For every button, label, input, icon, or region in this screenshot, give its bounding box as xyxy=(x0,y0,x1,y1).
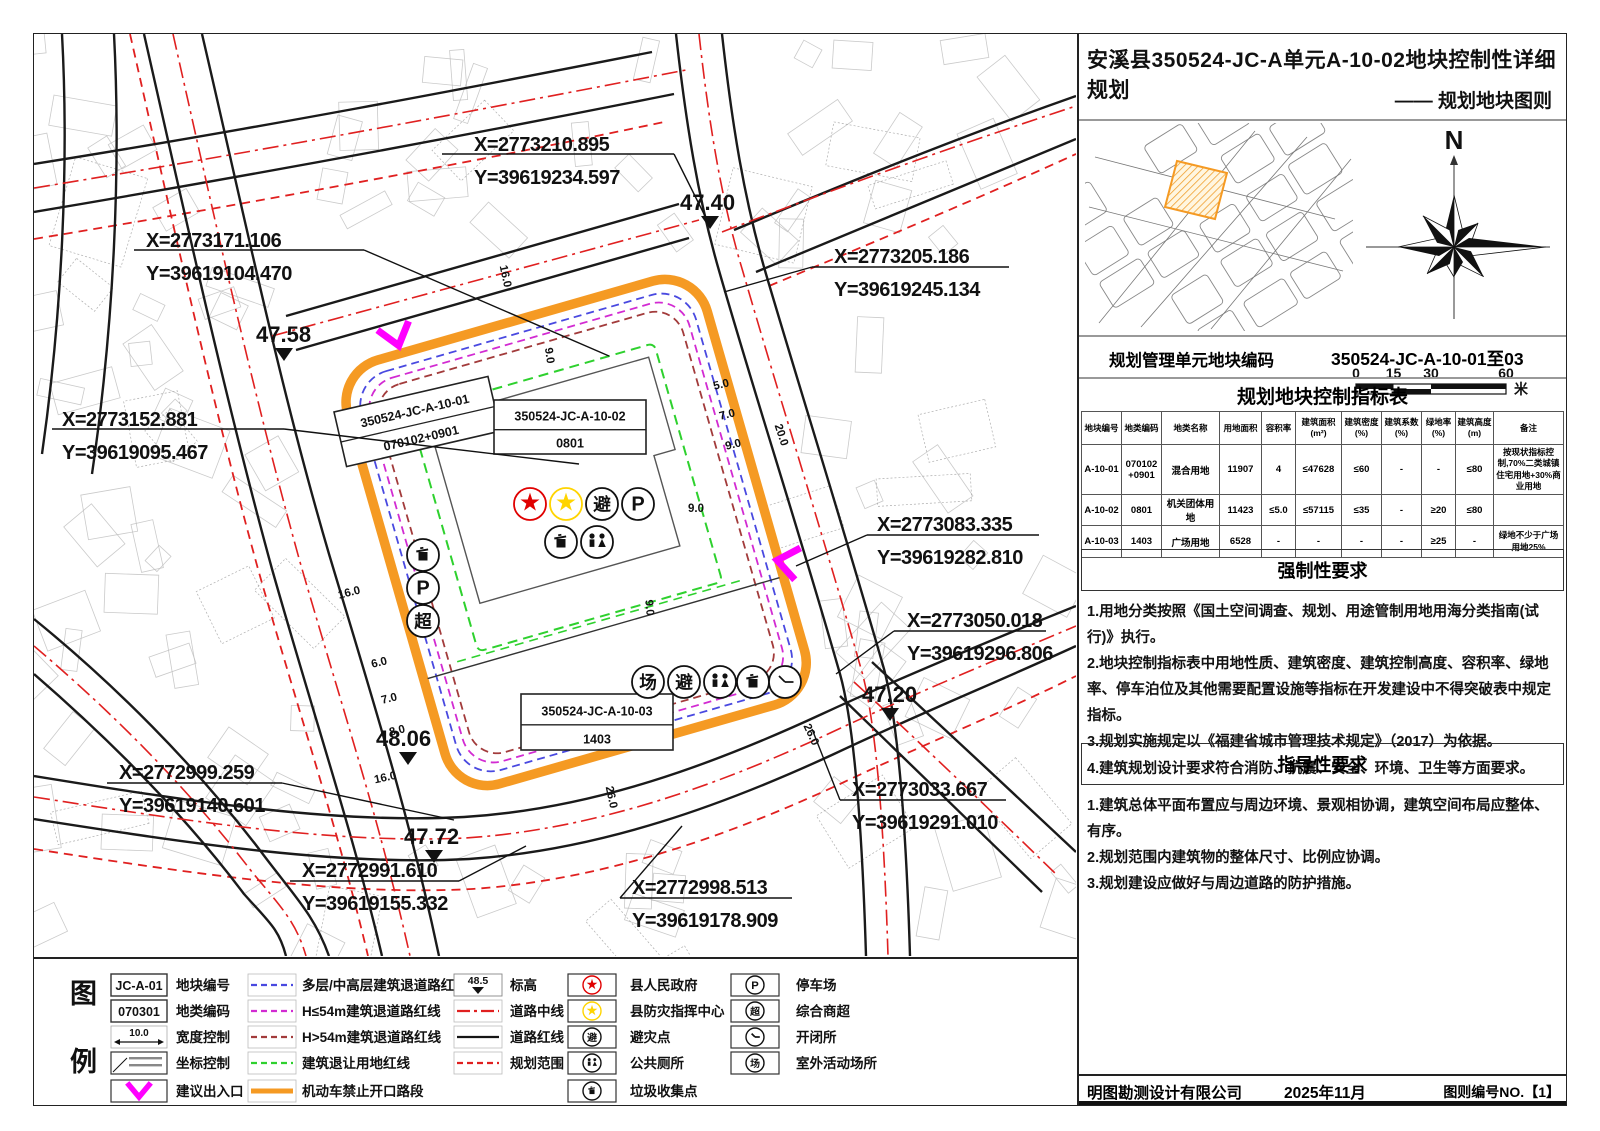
legend-label: 开闭所 xyxy=(796,1029,837,1045)
facility-char-icon: 超 xyxy=(407,605,439,637)
parcel-class-code: 0801 xyxy=(556,437,584,451)
elevation-value: 47.40 xyxy=(680,190,735,215)
coordinate-callout: X=2772998.513Y=39619178.909 xyxy=(620,826,792,932)
legend-symbol xyxy=(454,1000,502,1022)
coordinate-y: Y=39619234.597 xyxy=(474,167,620,189)
toilet-icon xyxy=(704,666,736,698)
table-cell: 4 xyxy=(1262,445,1296,495)
legend-label: 规划范围 xyxy=(510,1055,564,1071)
svg-text:P: P xyxy=(631,494,644,516)
site-plan-map: 350524-JC-A-10-01070102+0901350524-JC-A-… xyxy=(34,34,1076,956)
svg-text:P: P xyxy=(751,980,759,992)
facility-char-icon: 超 xyxy=(746,1002,764,1020)
mandatory-item: 2.地块控制指标表中用地性质、建筑密度、建筑控制高度、容积率、绿地率、停车泊位及… xyxy=(1087,651,1558,729)
page-subtitle: —— 规划地块图则 xyxy=(1395,86,1552,113)
trash-icon xyxy=(583,1082,601,1100)
legend-label: H≤54m建筑退道路红线 xyxy=(302,1003,441,1019)
svg-text:48.5: 48.5 xyxy=(468,975,489,987)
elevation-triangle-icon xyxy=(881,708,899,721)
plan-sheet: 350524-JC-A-10-01070102+0901350524-JC-A-… xyxy=(0,0,1600,1131)
svg-text:★: ★ xyxy=(555,490,577,517)
legend-symbol: 超 xyxy=(731,1000,779,1022)
indicator-table: 地块编号地类编码地类名称用地面积容积率建筑面积 (m²)建筑密度 (%)建筑系数… xyxy=(1081,411,1564,558)
elevation-mark: 47.72 xyxy=(404,824,459,863)
coordinate-x: X=2773210.895 xyxy=(474,134,610,156)
parcel-label: 350524-JC-A-10-020801 xyxy=(494,400,646,454)
table-cell: A-10-02 xyxy=(1082,495,1122,526)
toilet-icon xyxy=(583,1054,601,1072)
locator-streets xyxy=(1089,131,1351,329)
table-cell: 混合用地 xyxy=(1162,445,1220,495)
table-cell: ≤60 xyxy=(1342,445,1382,495)
guidance-title: 指导性要求 xyxy=(1081,743,1564,785)
coordinate-y: Y=39619291.010 xyxy=(852,812,998,834)
legend-label: 坐标控制 xyxy=(176,1055,230,1071)
legend: 图例JC-A-01地块编号070301地类编码10.0宽度控制坐标控制建议出入口… xyxy=(33,958,1078,1106)
coordinate-x: X=2773050.018 xyxy=(907,610,1043,632)
guidance-item: 2.规划范围内建筑物的整体尺寸、比例应协调。 xyxy=(1087,845,1558,871)
legend-symbol xyxy=(111,1080,167,1102)
svg-text:避: 避 xyxy=(593,495,611,515)
svg-text:★: ★ xyxy=(519,490,541,517)
legend-symbol xyxy=(248,1026,296,1048)
compass-block: N xyxy=(1354,127,1554,362)
svg-text:★: ★ xyxy=(586,1002,599,1018)
elevation-triangle-icon xyxy=(399,752,417,765)
legend-symbol xyxy=(568,1080,616,1102)
dimension-label: 9.0 xyxy=(542,347,556,365)
legend-label: 室外活动场所 xyxy=(796,1055,877,1071)
legend-label: 停车场 xyxy=(796,977,837,993)
info-panel: 安溪县350524-JC-A单元A-10-02地块控制性详细规划 —— 规划地块… xyxy=(1078,33,1567,1106)
legend-symbol xyxy=(111,1052,167,1074)
facility-char-icon: 避 xyxy=(586,488,618,520)
legend-label: 县人民政府 xyxy=(630,977,698,993)
coordinate-x: X=2773152.881 xyxy=(62,409,198,431)
legend-label: H>54m建筑退道路红线 xyxy=(302,1029,442,1045)
coordinate-x: X=2773205.186 xyxy=(834,246,970,268)
table-cell: - xyxy=(1382,445,1422,495)
table-cell: ≤35 xyxy=(1342,495,1382,526)
legend-symbol: ★ xyxy=(568,1000,616,1022)
star-icon: ★ xyxy=(550,488,582,520)
toilet-icon xyxy=(581,526,613,558)
coordinate-y: Y=39619155.332 xyxy=(302,893,448,915)
table-header-cell: 建筑高度 (m) xyxy=(1456,412,1494,445)
dimension-label: 16.0 xyxy=(337,585,362,602)
svg-text:6.0: 6.0 xyxy=(370,655,388,671)
svg-text:P: P xyxy=(416,578,429,600)
table-header-cell: 容积率 xyxy=(1262,412,1296,445)
svg-text:场: 场 xyxy=(639,673,657,693)
legend-symbol: ★ xyxy=(568,974,616,996)
svg-text:超: 超 xyxy=(414,612,432,632)
coordinate-x: X=2772998.513 xyxy=(632,877,768,899)
locator-section: N 0153060米 xyxy=(1079,121,1566,337)
svg-text:9.0: 9.0 xyxy=(642,599,655,616)
north-label: N xyxy=(1445,127,1464,155)
legend-symbol: 070301 xyxy=(111,1000,167,1022)
site-plan-map-frame: 350524-JC-A-10-01070102+0901350524-JC-A-… xyxy=(33,33,1078,958)
svg-text:10.0: 10.0 xyxy=(129,1028,149,1039)
svg-text:★: ★ xyxy=(586,976,599,992)
indicator-table-title: 规划地块控制指标表 xyxy=(1079,382,1566,409)
table-cell: - xyxy=(1422,445,1456,495)
legend-canvas: 图例JC-A-01地块编号070301地类编码10.0宽度控制坐标控制建议出入口… xyxy=(34,959,1076,1104)
map-overlays: 350524-JC-A-10-01070102+0901350524-JC-A-… xyxy=(52,134,1053,932)
dimension-label: 26.0 xyxy=(603,785,619,809)
dimension-label: 16.0 xyxy=(497,264,513,288)
facility-char-icon: P xyxy=(622,488,654,520)
mandatory-item: 1.用地分类按照《国土空间调查、规划、用途管制用地用海分类指南(试行)》执行。 xyxy=(1087,599,1558,651)
guidance-item: 3.规划建设应做好与周边道路的防护措施。 xyxy=(1087,871,1558,897)
title-block: 安溪县350524-JC-A单元A-10-02地块控制性详细规划 —— 规划地块… xyxy=(1079,34,1566,121)
star-icon: ★ xyxy=(514,488,546,520)
facility-char-icon: 场 xyxy=(632,666,664,698)
trash-icon xyxy=(737,666,769,698)
legend-label: 垃圾收集点 xyxy=(630,1083,698,1099)
legend-label: 公共厕所 xyxy=(630,1055,684,1071)
coordinate-y: Y=39619245.134 xyxy=(834,279,981,301)
parcel-code: 350524-JC-A-10-02 xyxy=(514,410,625,424)
elevation-value: 47.58 xyxy=(256,322,311,347)
elevation-mark: 47.40 xyxy=(680,190,735,229)
coordinate-x: X=2772991.610 xyxy=(302,860,438,882)
svg-text:16.0: 16.0 xyxy=(497,264,513,288)
trash-icon xyxy=(545,526,577,558)
svg-text:16.0: 16.0 xyxy=(337,585,362,602)
legend-symbol xyxy=(248,1080,296,1102)
svg-text:20.0: 20.0 xyxy=(772,423,790,448)
legend-heading-char: 例 xyxy=(70,1047,97,1077)
coordinate-y: Y=39619104.470 xyxy=(146,263,292,285)
legend-label: 地块编号 xyxy=(176,977,230,993)
table-header-cell: 地类编码 xyxy=(1122,412,1162,445)
legend-symbol xyxy=(248,1052,296,1074)
table-cell: 机关团体用地 xyxy=(1162,495,1220,526)
legend-label: 多层/中高层建筑退道路红线 xyxy=(302,977,468,993)
guidance-item: 1.建筑总体平面布置应与周边环境、景观相协调，建筑空间布局应整体、有序。 xyxy=(1087,793,1558,845)
mandatory-requirements: 强制性要求 1.用地分类按照《国土空间调查、规划、用途管制用地用海分类指南(试行… xyxy=(1079,549,1566,743)
table-header-cell: 建筑系数 (%) xyxy=(1382,412,1422,445)
legend-symbol xyxy=(454,1052,502,1074)
legend-label: 建筑退让用地红线 xyxy=(301,1055,410,1071)
legend-symbol xyxy=(454,1026,502,1048)
svg-text:场: 场 xyxy=(750,1057,760,1070)
table-cell: 11423 xyxy=(1220,495,1262,526)
svg-text:JC-A-01: JC-A-01 xyxy=(115,979,162,993)
dimension-label: 16.0 xyxy=(373,770,397,786)
clock-icon xyxy=(769,666,801,698)
dimension-label: 20.0 xyxy=(772,423,790,448)
svg-text:26.0: 26.0 xyxy=(603,785,619,809)
legend-symbol: P xyxy=(731,974,779,996)
clock-icon xyxy=(746,1028,764,1046)
locator-map xyxy=(1085,123,1353,331)
legend-label: 道路中线 xyxy=(510,1003,564,1019)
wind-rose: N xyxy=(1354,127,1554,337)
table-header-cell: 建筑密度 (%) xyxy=(1342,412,1382,445)
star-icon: ★ xyxy=(583,1002,601,1020)
trash-icon xyxy=(407,539,439,571)
svg-text:16.0: 16.0 xyxy=(373,770,397,786)
table-cell: 0801 xyxy=(1122,495,1162,526)
legend-heading-char: 图 xyxy=(70,979,97,1009)
legend-symbol: 避 xyxy=(568,1026,616,1048)
guidance-body: 1.建筑总体平面布置应与周边环境、景观相协调，建筑空间布局应整体、有序。2.规划… xyxy=(1079,785,1566,897)
table-cell xyxy=(1494,495,1564,526)
dimension-label: 9.0 xyxy=(642,599,655,616)
facility-char-icon: P xyxy=(746,976,764,994)
legend-label: 综合商超 xyxy=(796,1003,850,1019)
legend-label: 县防灾指挥中心 xyxy=(630,1003,725,1019)
svg-text:避: 避 xyxy=(587,1031,597,1044)
svg-text:070301: 070301 xyxy=(118,1005,160,1019)
coordinate-callout: X=2773033.667Y=39619291.010 xyxy=(812,729,1006,834)
legend-label: 地类编码 xyxy=(176,1003,230,1019)
table-cell: ≤5.0 xyxy=(1262,495,1296,526)
svg-text:避: 避 xyxy=(675,673,693,693)
parcel-label: 350524-JC-A-10-031403 xyxy=(521,694,673,750)
legend-label: 避灾点 xyxy=(630,1029,671,1045)
facility-char-icon: 避 xyxy=(668,666,700,698)
locator-site-highlight xyxy=(1165,161,1227,219)
legend-symbol: 10.0 xyxy=(111,1026,167,1048)
table-cell: A-10-01 xyxy=(1082,445,1122,495)
legend-label: 建议出入口 xyxy=(175,1083,244,1099)
legend-symbol: 场 xyxy=(731,1052,779,1074)
svg-text:9.0: 9.0 xyxy=(542,347,556,365)
elevation-value: 47.72 xyxy=(404,824,459,849)
dimension-label: 6.0 xyxy=(370,655,388,671)
unit-code-value: 350524-JC-A-10-01至03 xyxy=(1331,346,1524,371)
legend-label: 标高 xyxy=(509,977,537,993)
table-header-cell: 建筑面积 (m²) xyxy=(1296,412,1342,445)
coordinate-y: Y=39619095.467 xyxy=(62,442,208,464)
dimension-label: 9.0 xyxy=(688,503,704,515)
table-cell: - xyxy=(1382,495,1422,526)
mandatory-title: 强制性要求 xyxy=(1081,549,1564,591)
svg-text:7.0: 7.0 xyxy=(380,691,398,707)
facility-char-icon: 场 xyxy=(746,1054,764,1072)
suggested-entrance-icon xyxy=(380,324,412,349)
facility-char-icon: 避 xyxy=(583,1028,601,1046)
guidance-requirements: 指导性要求 1.建筑总体平面布置应与周边环境、景观相协调，建筑空间布局应整体、有… xyxy=(1079,743,1566,1074)
table-header-cell: 用地面积 xyxy=(1220,412,1262,445)
table-cell: ≤47628 xyxy=(1296,445,1342,495)
parcel-class-code: 1403 xyxy=(583,732,611,746)
footer-date: 2025年11月 xyxy=(1284,1081,1366,1103)
table-header-cell: 地块编号 xyxy=(1082,412,1122,445)
svg-text:超: 超 xyxy=(749,1005,760,1018)
elevation-value: 47.20 xyxy=(862,682,917,707)
table-header-cell: 备注 xyxy=(1494,412,1564,445)
coordinate-callout: X=2773083.335Y=39619282.810 xyxy=(796,514,1039,569)
table-cell: ≥20 xyxy=(1422,495,1456,526)
legend-label: 道路红线 xyxy=(510,1029,564,1045)
coordinate-y: Y=39619296.806 xyxy=(907,643,1053,665)
coordinate-x: X=2772999.259 xyxy=(119,762,255,784)
unit-code-row: 规划管理单元地块编码 350524-JC-A-10-01至03 xyxy=(1079,337,1566,379)
legend-symbol: 48.5 xyxy=(454,974,502,996)
legend-symbol xyxy=(248,1000,296,1022)
table-header-cell: 绿地率 (%) xyxy=(1422,412,1456,445)
legend-symbol xyxy=(731,1026,779,1048)
table-header-cell: 地类名称 xyxy=(1162,412,1220,445)
coordinate-x: X=2773033.667 xyxy=(852,779,988,801)
dimension-label: 7.0 xyxy=(380,691,398,707)
elevation-triangle-icon xyxy=(701,216,719,229)
legend-label: 机动车禁止开口路段 xyxy=(302,1083,424,1099)
table-cell: ≤57115 xyxy=(1296,495,1342,526)
footer-company: 明图勘测设计有限公司 xyxy=(1087,1081,1242,1103)
legend-symbol: JC-A-01 xyxy=(111,974,167,996)
elevation-value: 48.06 xyxy=(376,726,431,751)
star-icon: ★ xyxy=(583,976,601,994)
parcel-code: 350524-JC-A-10-03 xyxy=(541,704,652,718)
elevation-mark: 48.06 xyxy=(376,726,431,765)
table-cell: 070102 +0901 xyxy=(1122,445,1162,495)
table-cell: 按现状指标控制,70%二类城镇住宅用地+30%商业用地 xyxy=(1494,445,1564,495)
legend-symbol xyxy=(248,974,296,996)
coordinate-y: Y=39619140.601 xyxy=(119,795,265,817)
svg-text:9.0: 9.0 xyxy=(688,503,704,515)
facility-char-icon: P xyxy=(407,572,439,604)
coordinate-y: Y=39619282.810 xyxy=(877,547,1023,569)
coordinate-y: Y=39619178.909 xyxy=(632,910,778,932)
legend-label: 宽度控制 xyxy=(176,1029,230,1045)
table-cell: ≤80 xyxy=(1456,495,1494,526)
footer-sheet-number: 图则编号NO.【1】 xyxy=(1443,1082,1560,1102)
north-arrow-icon xyxy=(1450,155,1458,165)
coordinate-x: X=2773171.106 xyxy=(146,230,282,252)
title-bar-footer: 明图勘测设计有限公司 2025年11月 图则编号NO.【1】 xyxy=(1079,1074,1566,1105)
indicator-table-section: 规划地块控制指标表 地块编号地类编码地类名称用地面积容积率建筑面积 (m²)建筑… xyxy=(1079,379,1566,549)
table-cell: 11907 xyxy=(1220,445,1262,495)
unit-code-label: 规划管理单元地块编码 xyxy=(1109,347,1274,371)
coordinate-callout: X=2773210.895Y=39619234.597 xyxy=(442,134,710,226)
table-cell: ≤80 xyxy=(1456,445,1494,495)
coordinate-x: X=2773083.335 xyxy=(877,514,1013,536)
legend-symbol xyxy=(568,1052,616,1074)
elevation-mark: 47.58 xyxy=(256,322,311,361)
